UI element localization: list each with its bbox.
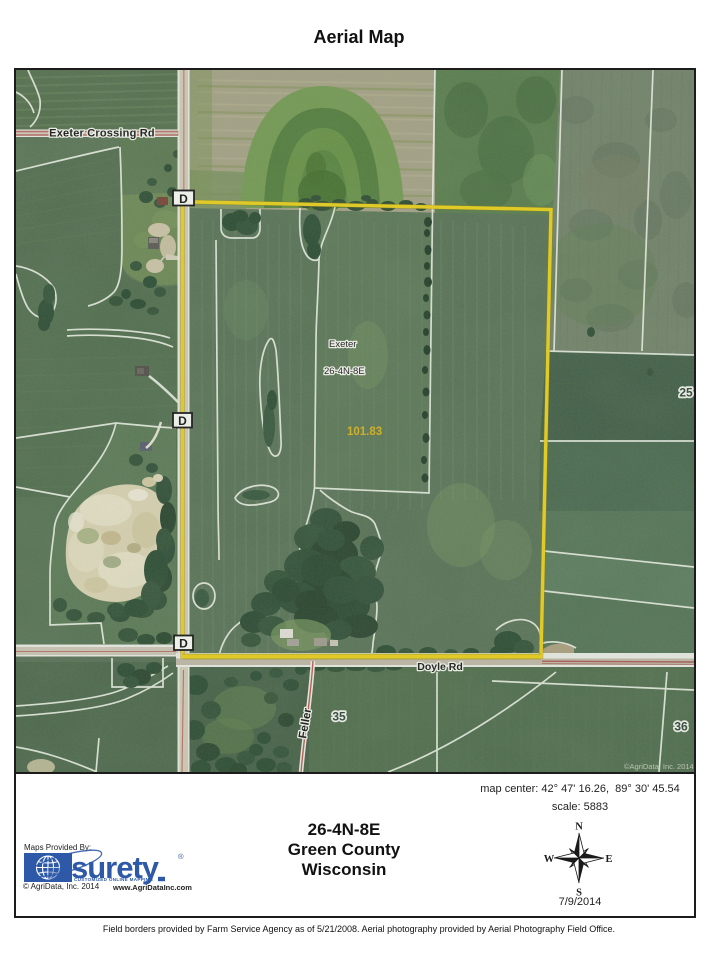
svg-text:S: S xyxy=(576,888,582,899)
svg-text:W: W xyxy=(544,854,555,865)
svg-text:N: N xyxy=(575,822,583,833)
svg-text:®: ® xyxy=(178,852,184,861)
svg-text:E: E xyxy=(605,854,612,865)
